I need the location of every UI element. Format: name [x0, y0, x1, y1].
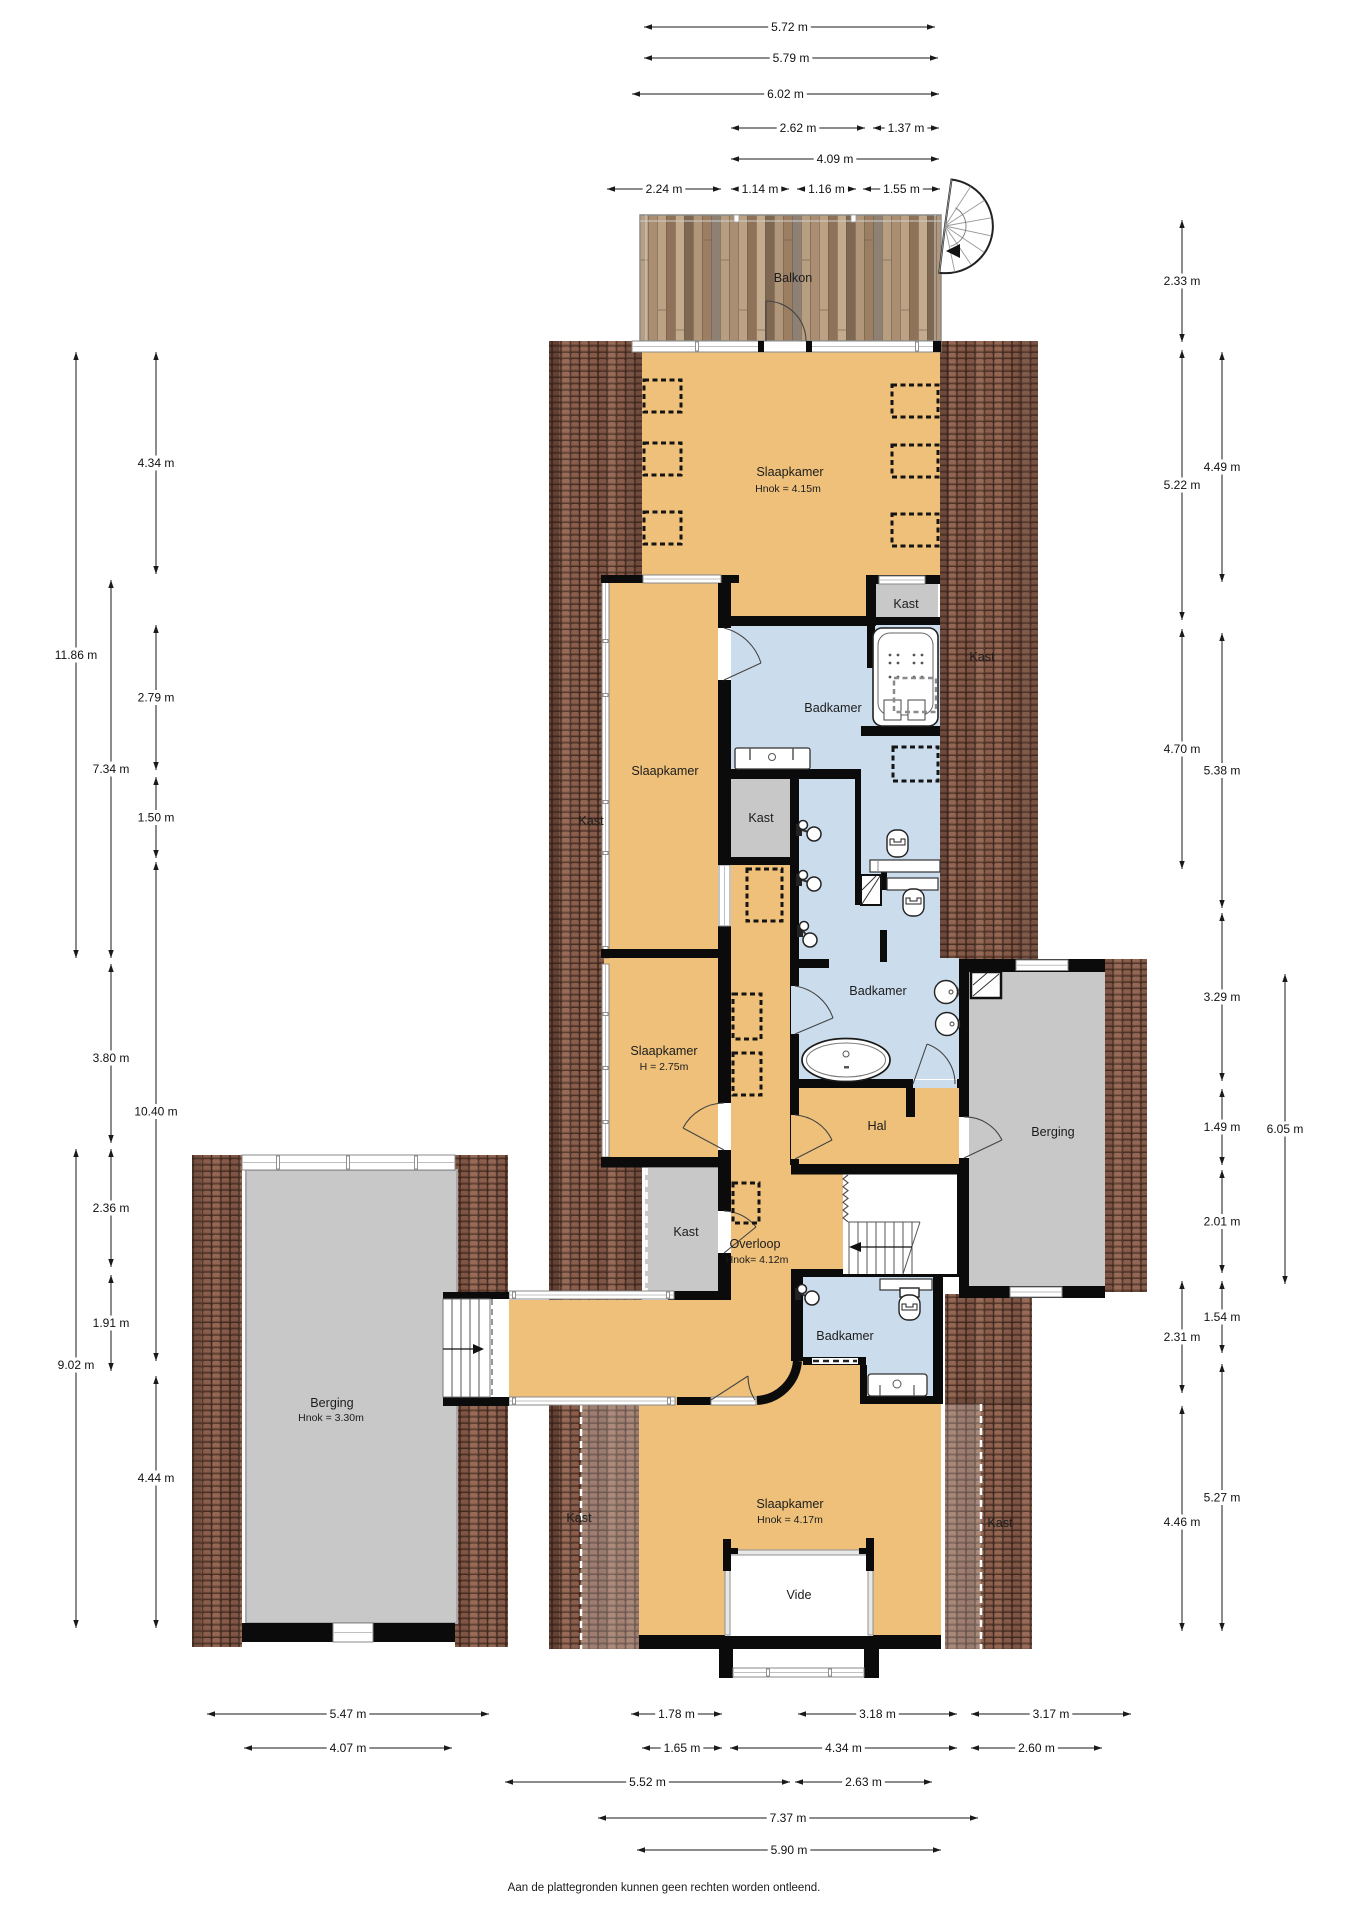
svg-text:1.16 m: 1.16 m [808, 182, 845, 196]
svg-text:5.79 m: 5.79 m [773, 51, 810, 65]
svg-text:5.90 m: 5.90 m [771, 1843, 808, 1857]
svg-text:4.07 m: 4.07 m [330, 1741, 367, 1755]
svg-text:Hnok = 3.30m: Hnok = 3.30m [298, 1412, 364, 1424]
svg-text:4.70 m: 4.70 m [1164, 742, 1201, 756]
svg-text:Slaapkamer: Slaapkamer [631, 764, 698, 778]
svg-text:Hnok = 4.15m: Hnok = 4.15m [755, 483, 821, 495]
svg-text:2.60 m: 2.60 m [1018, 1741, 1055, 1755]
svg-text:4.34 m: 4.34 m [138, 456, 175, 470]
svg-text:2.36 m: 2.36 m [93, 1201, 130, 1215]
svg-text:1.78 m: 1.78 m [658, 1707, 695, 1721]
svg-text:Kast: Kast [987, 1516, 1013, 1530]
svg-text:1.37 m: 1.37 m [888, 121, 925, 135]
svg-text:Kast: Kast [893, 597, 919, 611]
svg-text:Kast: Kast [566, 1511, 592, 1525]
svg-text:1.55 m: 1.55 m [883, 182, 920, 196]
svg-text:4.34 m: 4.34 m [825, 1741, 862, 1755]
svg-text:1.91 m: 1.91 m [93, 1316, 130, 1330]
svg-text:5.72 m: 5.72 m [771, 20, 808, 34]
svg-text:2.62 m: 2.62 m [780, 121, 817, 135]
svg-text:Slaapkamer: Slaapkamer [756, 1497, 823, 1511]
svg-text:Berging: Berging [1031, 1125, 1074, 1139]
svg-text:5.52 m: 5.52 m [629, 1775, 666, 1789]
svg-text:3.29 m: 3.29 m [1204, 990, 1241, 1004]
svg-text:Badkamer: Badkamer [804, 701, 861, 715]
svg-text:Hnok= 4.12m: Hnok= 4.12m [726, 1254, 789, 1266]
svg-text:Aan de plattegronden kunnen ge: Aan de plattegronden kunnen geen rechten… [508, 1882, 821, 1894]
svg-text:7.34 m: 7.34 m [93, 762, 130, 776]
svg-text:Kast: Kast [673, 1225, 699, 1239]
svg-text:5.38 m: 5.38 m [1204, 764, 1241, 778]
svg-text:2.63 m: 2.63 m [845, 1775, 882, 1789]
svg-text:3.80 m: 3.80 m [93, 1051, 130, 1065]
svg-text:1.49 m: 1.49 m [1204, 1120, 1241, 1134]
svg-text:4.09 m: 4.09 m [817, 152, 854, 166]
svg-text:H = 2.75m: H = 2.75m [640, 1061, 689, 1073]
svg-text:5.27 m: 5.27 m [1204, 1491, 1241, 1505]
svg-text:5.22 m: 5.22 m [1164, 478, 1201, 492]
svg-text:Badkamer: Badkamer [849, 984, 906, 998]
svg-text:Balkon: Balkon [774, 271, 813, 285]
svg-text:1.54 m: 1.54 m [1204, 1310, 1241, 1324]
svg-text:6.02 m: 6.02 m [767, 87, 804, 101]
svg-text:9.02 m: 9.02 m [58, 1358, 95, 1372]
svg-text:Kast: Kast [578, 814, 604, 828]
svg-text:Berging: Berging [310, 1396, 353, 1410]
svg-text:1.65 m: 1.65 m [664, 1741, 701, 1755]
svg-text:Vide: Vide [787, 1588, 812, 1602]
svg-text:Slaapkamer: Slaapkamer [756, 465, 823, 479]
svg-text:Slaapkamer: Slaapkamer [630, 1044, 697, 1058]
svg-text:7.37 m: 7.37 m [770, 1811, 807, 1825]
svg-text:6.05 m: 6.05 m [1267, 1122, 1304, 1136]
svg-text:Badkamer: Badkamer [816, 1329, 873, 1343]
svg-text:Hal: Hal [868, 1119, 887, 1133]
svg-text:Overloop: Overloop [729, 1237, 780, 1251]
svg-text:1.50 m: 1.50 m [138, 811, 175, 825]
svg-text:2.31 m: 2.31 m [1164, 1330, 1201, 1344]
svg-text:4.46 m: 4.46 m [1164, 1515, 1201, 1529]
svg-text:2.33 m: 2.33 m [1164, 274, 1201, 288]
svg-text:3.18 m: 3.18 m [859, 1707, 896, 1721]
svg-text:2.24 m: 2.24 m [646, 182, 683, 196]
svg-text:11.86 m: 11.86 m [55, 648, 97, 662]
svg-text:3.17 m: 3.17 m [1033, 1707, 1070, 1721]
svg-text:2.79 m: 2.79 m [138, 691, 175, 705]
svg-text:Hnok = 4.17m: Hnok = 4.17m [757, 1514, 823, 1526]
svg-text:Kast: Kast [748, 811, 774, 825]
svg-text:10.40 m: 10.40 m [134, 1105, 177, 1119]
svg-text:Kast: Kast [969, 650, 995, 664]
svg-text:2.01 m: 2.01 m [1204, 1215, 1241, 1229]
svg-text:4.44 m: 4.44 m [138, 1471, 175, 1485]
svg-text:4.49 m: 4.49 m [1204, 460, 1241, 474]
svg-text:1.14 m: 1.14 m [742, 182, 779, 196]
svg-text:5.47 m: 5.47 m [330, 1707, 367, 1721]
